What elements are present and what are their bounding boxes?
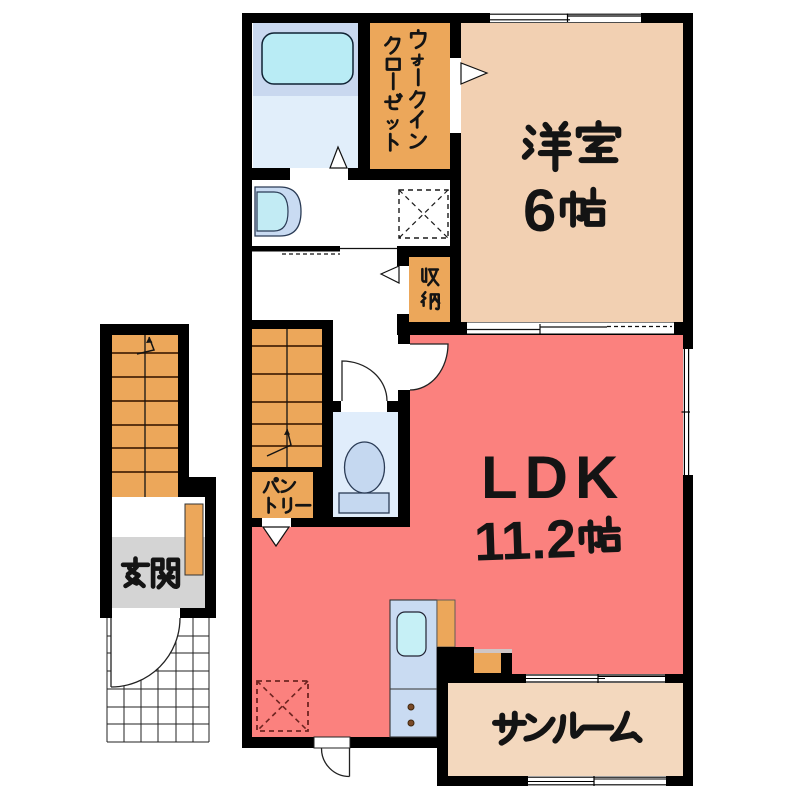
svg-text:LDK: LDK xyxy=(481,444,625,511)
svg-text:6: 6 xyxy=(523,177,556,244)
svg-text:11.2: 11.2 xyxy=(473,509,577,573)
